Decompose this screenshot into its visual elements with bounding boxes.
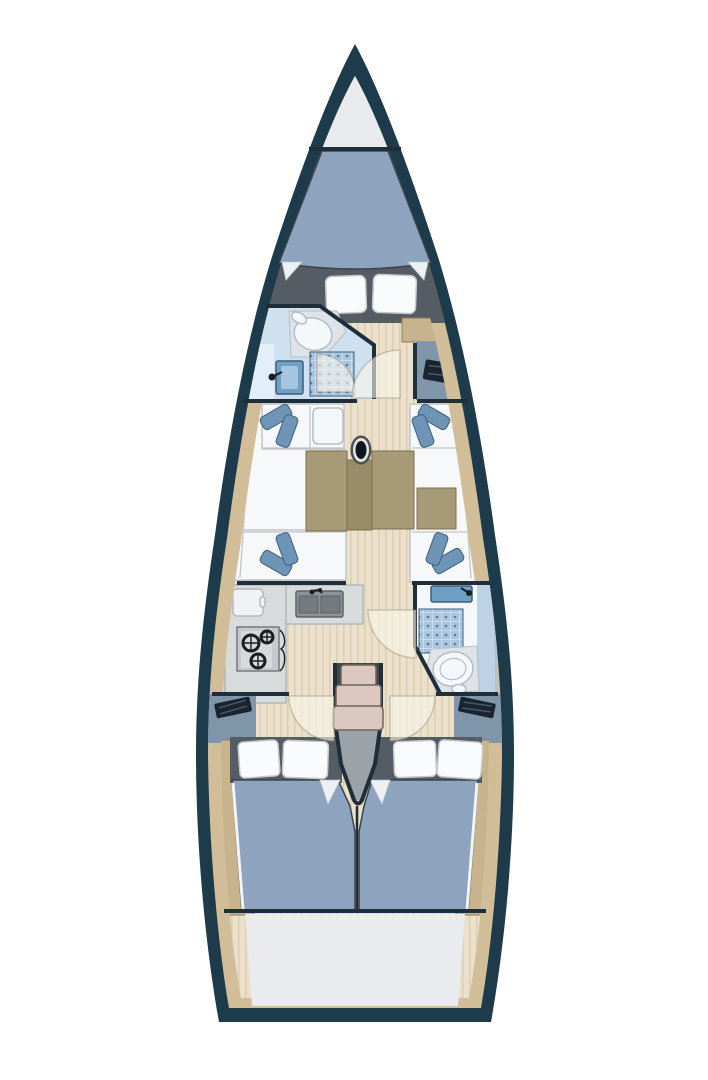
starboard-bed-pillow-2 <box>437 740 483 780</box>
aft-shower-tiles <box>419 609 463 653</box>
stern-locker <box>245 914 465 1006</box>
salon-white-locker <box>313 408 343 444</box>
port-aft-bed <box>232 780 355 912</box>
aft-sink <box>431 586 472 602</box>
starboard-bed-pillow-1 <box>393 740 436 777</box>
v-berth-pillow-right <box>372 274 416 313</box>
starboard-aft-bed <box>359 780 478 912</box>
mast <box>351 436 372 465</box>
yacht-floorplan <box>0 0 708 1080</box>
floorplan-canvas <box>0 0 708 1080</box>
companionway-step-1 <box>341 665 376 686</box>
stove <box>237 627 285 671</box>
v-berth-cabin <box>261 147 449 323</box>
companionway-step-2 <box>336 685 381 707</box>
salon-table-starboard-leaf <box>372 451 414 529</box>
port-bed-pillow-2 <box>282 740 328 779</box>
salon-table-center <box>347 460 372 530</box>
companionway-step-3 <box>333 706 383 730</box>
v-berth-mattress <box>279 151 431 269</box>
fridge <box>233 589 263 616</box>
forward-sink-basin <box>281 366 298 389</box>
salon-side-table <box>417 488 456 529</box>
port-bed-pillow-1 <box>238 740 280 779</box>
v-berth-pillow-left <box>325 275 366 313</box>
fridge-handle <box>260 597 265 607</box>
salon-table-port-leaf <box>306 451 347 531</box>
